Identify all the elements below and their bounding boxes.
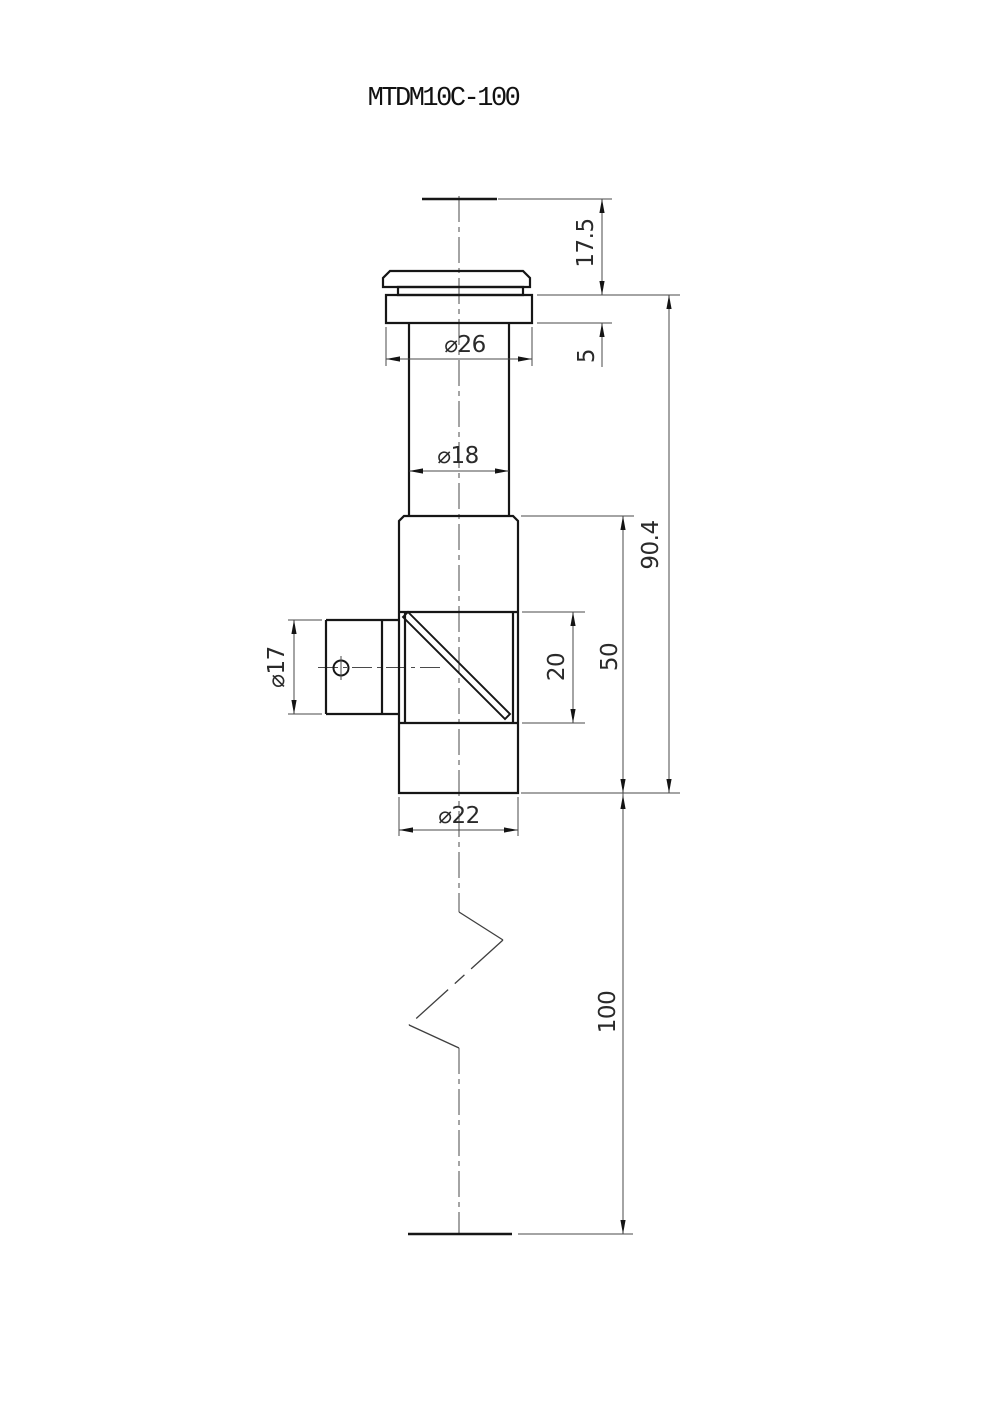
ext-port-dia — [288, 620, 322, 714]
part-title: MTDM10C-100 — [368, 84, 520, 114]
dim-value: ⌀18 — [437, 443, 479, 469]
dim-value: 17.5 — [573, 218, 599, 267]
arrowhead-left — [409, 468, 423, 473]
break-symbol — [409, 912, 503, 1048]
arrowhead-right — [504, 827, 518, 832]
break-diagonal — [409, 940, 503, 1025]
arrowhead-down — [620, 779, 625, 793]
arrowhead-up — [620, 795, 625, 809]
arrowhead-up — [599, 199, 604, 213]
dim-value: ⌀22 — [438, 803, 480, 829]
dim-body-height: 50 — [597, 516, 626, 793]
drawing-sheet: MTDM10C-100 — [0, 0, 992, 1403]
dim-value: 5 — [574, 349, 600, 363]
dim-value: 50 — [597, 643, 623, 671]
arrowhead-down — [599, 281, 604, 295]
dim-flange-thickness: 5 — [574, 323, 605, 367]
arrowhead-down — [666, 779, 671, 793]
arrowhead-down — [570, 709, 575, 723]
mirror-plate — [403, 612, 510, 719]
arrowhead-down — [620, 1220, 625, 1234]
break-jog-upper — [459, 912, 503, 940]
dim-value: ⌀26 — [444, 332, 486, 358]
dim-value: 100 — [595, 991, 621, 1033]
arrowhead-left — [399, 827, 413, 832]
dim-assembly-height: 90.4 — [638, 295, 672, 793]
arrowhead-up — [620, 516, 625, 530]
arrowhead-up — [599, 323, 604, 337]
top-cap — [383, 271, 530, 287]
dim-value: 90.4 — [638, 520, 664, 569]
dim-post-length: 100 — [595, 793, 626, 1234]
dim-shaft-dia: ⌀18 — [409, 443, 509, 474]
dim-port-dia: ⌀17 — [264, 620, 297, 714]
arrowhead-right — [518, 356, 532, 361]
arrowhead-up — [666, 295, 671, 309]
dim-body-dia: ⌀22 — [399, 803, 518, 833]
dim-value: 20 — [544, 653, 570, 681]
retaining-ring — [398, 287, 523, 295]
arrowhead-left — [386, 356, 400, 361]
arrowhead-up — [291, 620, 296, 634]
extension-lines — [288, 295, 680, 1234]
arrowhead-down — [291, 700, 296, 714]
dim-value: ⌀17 — [264, 646, 290, 688]
technical-drawing: MTDM10C-100 — [0, 0, 992, 1403]
dim-window-height: 20 — [544, 612, 576, 723]
dim-top-clearance: 17.5 — [573, 199, 605, 295]
break-jog-lower — [409, 1025, 459, 1048]
arrowhead-right — [495, 468, 509, 473]
arrowhead-up — [570, 612, 575, 626]
